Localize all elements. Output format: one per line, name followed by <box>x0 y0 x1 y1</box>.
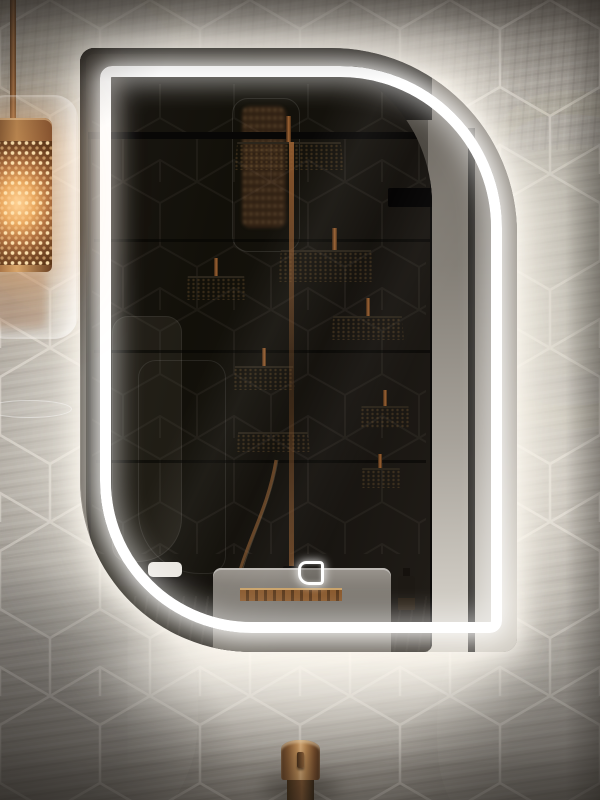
pendant-copper-shade <box>0 118 52 272</box>
pendant-inner-glow <box>0 272 46 328</box>
led-mirror <box>80 48 517 652</box>
pendant-shade-rim <box>0 265 52 272</box>
bathroom-scene <box>0 0 600 800</box>
faucet-spout-notch <box>297 752 304 768</box>
pendant-shade-cap <box>0 118 52 141</box>
faucet-reflection <box>287 780 314 800</box>
glass-sheen <box>80 48 517 652</box>
